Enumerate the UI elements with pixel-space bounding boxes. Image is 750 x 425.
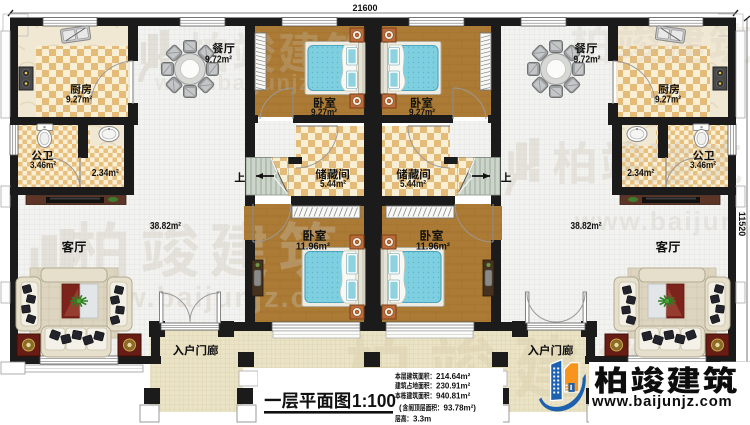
svg-text:9.72m²: 9.72m² <box>574 55 602 66</box>
svg-text:93.78m²): 93.78m²) <box>444 404 477 413</box>
svg-text:3.3m: 3.3m <box>413 415 431 424</box>
svg-text:214.64m²: 214.64m² <box>436 372 471 381</box>
svg-text:11.96m²: 11.96m² <box>296 241 330 253</box>
svg-text:(: ( <box>399 404 402 413</box>
svg-text:11520: 11520 <box>737 212 747 237</box>
svg-text:9.27m²: 9.27m² <box>409 108 436 119</box>
svg-text:2.34m²: 2.34m² <box>627 168 655 179</box>
svg-text:www.baijunjz.com: www.baijunjz.com <box>591 394 733 410</box>
svg-text:38.82m²: 38.82m² <box>571 220 602 232</box>
svg-text:38.82m²: 38.82m² <box>150 220 181 232</box>
svg-text:940.81m²: 940.81m² <box>436 392 471 401</box>
svg-text:1:100: 1:100 <box>352 390 396 411</box>
svg-text:11.96m²: 11.96m² <box>416 241 450 253</box>
svg-text:2.34m²: 2.34m² <box>92 168 120 179</box>
svg-text:3.46m²: 3.46m² <box>690 160 716 171</box>
svg-text:9.27m²: 9.27m² <box>655 95 682 106</box>
svg-text:21600: 21600 <box>352 3 377 13</box>
svg-text:9.27m²: 9.27m² <box>66 95 93 106</box>
svg-text:9.27m²: 9.27m² <box>311 108 338 119</box>
svg-text:3.46m²: 3.46m² <box>30 160 56 171</box>
svg-text:230.91m²: 230.91m² <box>436 382 471 391</box>
svg-text:5.44m²: 5.44m² <box>320 179 347 190</box>
svg-text:9.72m²: 9.72m² <box>205 55 233 66</box>
svg-text:5.44m²: 5.44m² <box>400 179 427 190</box>
